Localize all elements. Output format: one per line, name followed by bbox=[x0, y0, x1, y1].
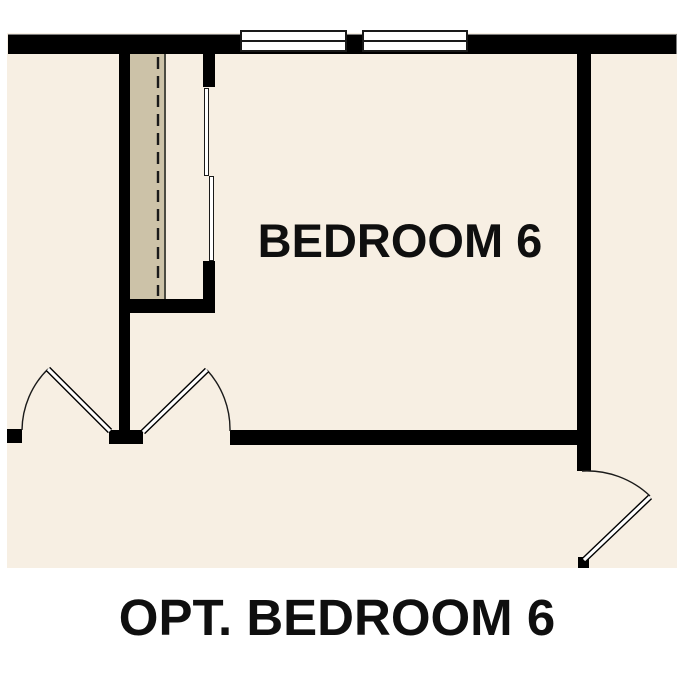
window-sash-divider bbox=[242, 40, 345, 42]
closet-bottom-wall bbox=[119, 299, 215, 313]
closet-right-jamb-upper bbox=[203, 54, 215, 87]
closet-shelf-symbol bbox=[130, 54, 164, 299]
center-door-jamb bbox=[109, 430, 143, 444]
room-label: BEDROOM 6 bbox=[215, 217, 585, 264]
closet-shelf-edge-line bbox=[164, 54, 166, 299]
closet-right-jamb-lower bbox=[203, 261, 215, 299]
bottom-interior-wall bbox=[230, 430, 577, 445]
left-door-stub-wall bbox=[7, 429, 22, 443]
window-symbol-2 bbox=[362, 30, 468, 52]
floor-plan-page: BEDROOM 6 OPT. BEDROOM 6 bbox=[0, 0, 687, 687]
bypass-door-panel-back bbox=[209, 176, 214, 261]
window-sash-divider bbox=[364, 40, 466, 42]
bypass-door-panel-front bbox=[204, 88, 209, 176]
closet-left-wall bbox=[119, 54, 130, 430]
right-door-hinge-block bbox=[578, 557, 589, 568]
window-symbol-1 bbox=[240, 30, 347, 52]
plan-caption: OPT. BEDROOM 6 bbox=[0, 592, 674, 644]
